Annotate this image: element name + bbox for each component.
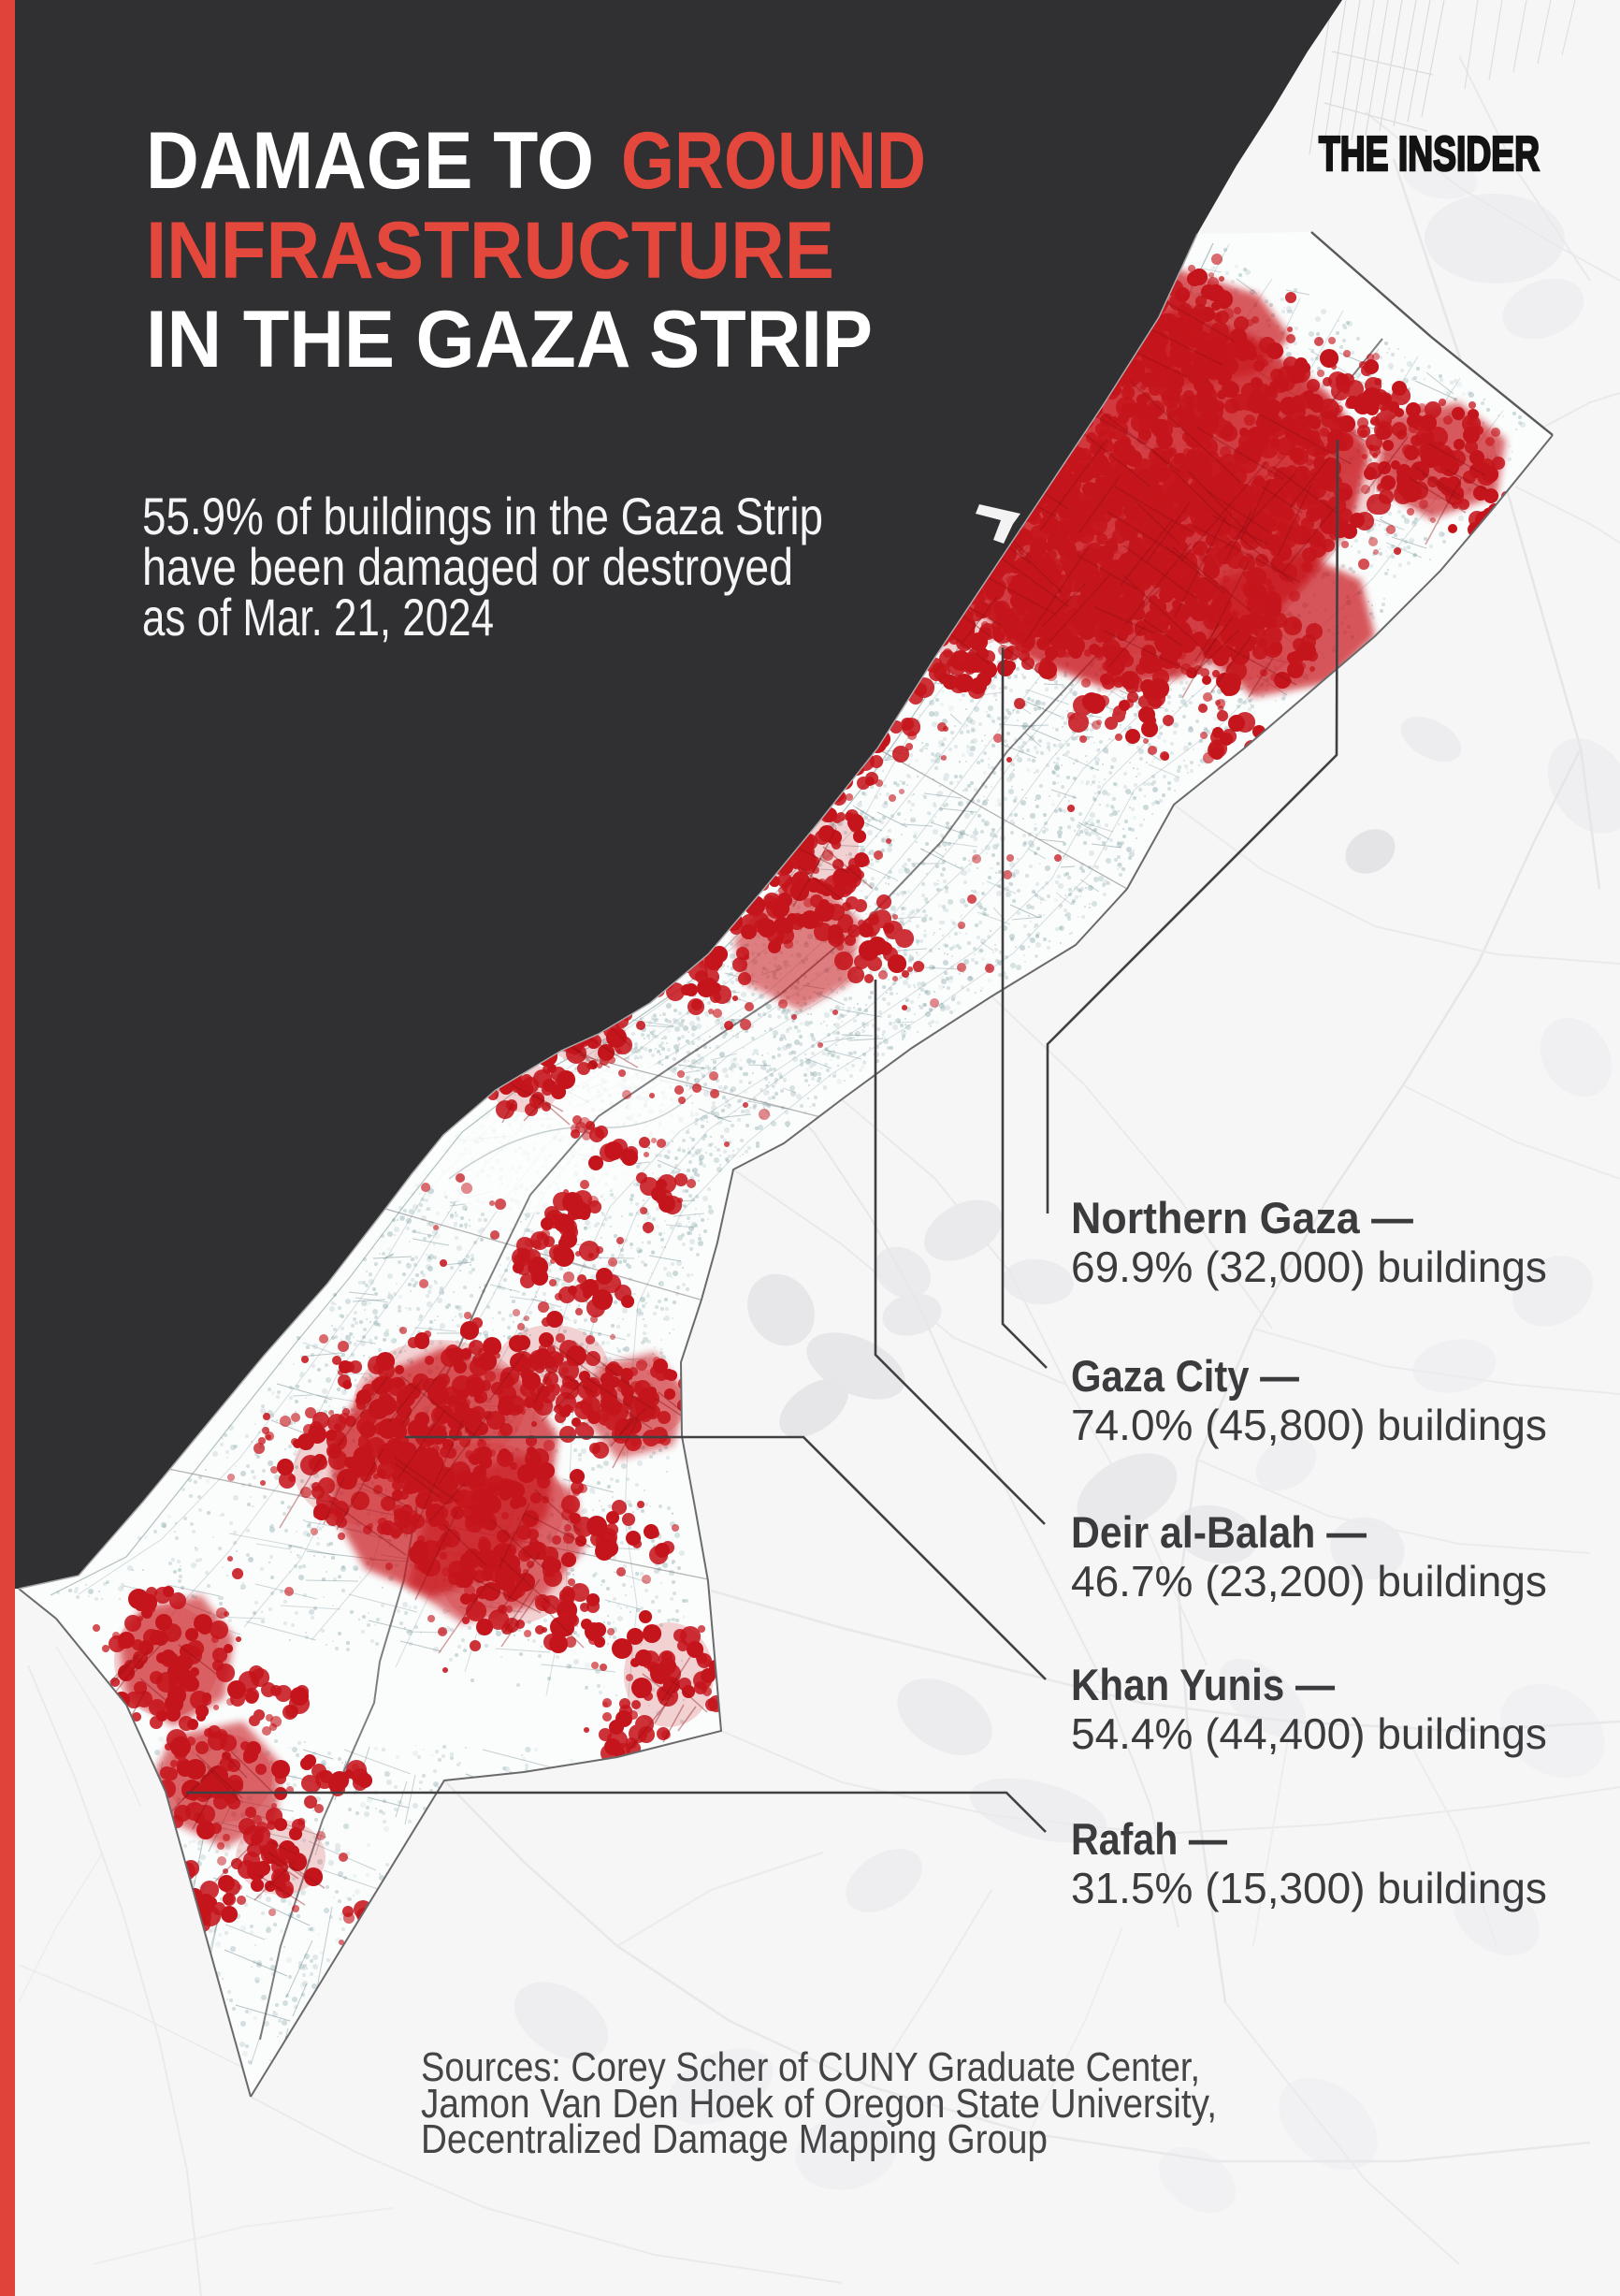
svg-text:Deir al-Balah —: Deir al-Balah — <box>1071 1507 1367 1557</box>
svg-text:Northern Gaza —: Northern Gaza — <box>1071 1193 1413 1242</box>
svg-text:46.7% (23,200) buildings: 46.7% (23,200) buildings <box>1071 1557 1547 1606</box>
svg-text:as of Mar. 21, 2024: as of Mar. 21, 2024 <box>142 588 494 647</box>
svg-text:69.9% (32,000) buildings: 69.9% (32,000) buildings <box>1071 1242 1547 1291</box>
svg-text:INFRASTRUCTURE: INFRASTRUCTURE <box>146 206 834 296</box>
svg-text:31.5% (15,300) buildings: 31.5% (15,300) buildings <box>1071 1864 1547 1912</box>
svg-text:54.4% (44,400) buildings: 54.4% (44,400) buildings <box>1071 1709 1547 1758</box>
svg-text:GROUND: GROUND <box>621 116 926 206</box>
svg-text:DAMAGE TO: DAMAGE TO <box>146 116 594 206</box>
svg-text:74.0% (45,800) buildings: 74.0% (45,800) buildings <box>1071 1401 1547 1449</box>
svg-text:Rafah —: Rafah — <box>1071 1814 1227 1864</box>
svg-text:IN THE GAZA STRIP: IN THE GAZA STRIP <box>146 295 873 385</box>
svg-text:Decentralized Damage Mapping G: Decentralized Damage Mapping Group <box>421 2116 1048 2162</box>
svg-text:Khan Yunis —: Khan Yunis — <box>1071 1660 1335 1709</box>
svg-text:THE INSIDER: THE INSIDER <box>1319 127 1540 182</box>
svg-text:Gaza City —: Gaza City — <box>1071 1351 1299 1401</box>
